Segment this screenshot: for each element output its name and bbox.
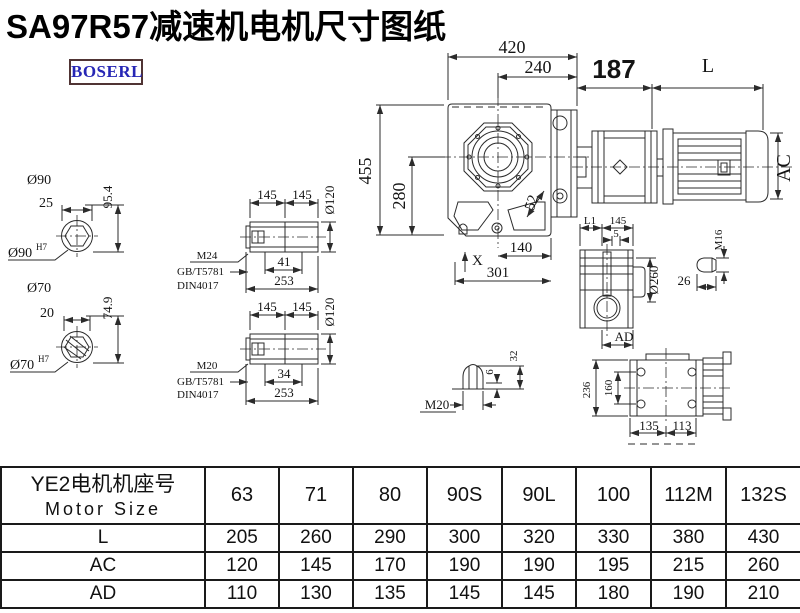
dim-32: 32 (508, 351, 520, 362)
dim-187: 187 (592, 54, 635, 84)
table-row-L: L 205 260 290 300 320 330 380 430 (1, 524, 800, 552)
dim-95-4: 95.4 (100, 185, 115, 208)
table-header-row: YE2电机机座号 Motor Size 63 71 80 90S 90L 100… (1, 467, 800, 524)
size-col: 71 (279, 467, 353, 524)
cell: 145 (279, 552, 353, 580)
label-d70: Ø70 (27, 281, 51, 296)
dim-140: 140 (510, 240, 533, 256)
dim-145a: 145 (257, 187, 277, 202)
dim-AD: AD (615, 329, 634, 344)
table-row-AC: AC 120 145 170 190 190 195 215 260 (1, 552, 800, 580)
label-d70h7-tol: H7 (38, 354, 49, 364)
row-label: AD (1, 580, 205, 608)
size-col: 90S (427, 467, 502, 524)
dim-145e: 145 (610, 215, 627, 227)
label-din4017-a: DIN4017 (177, 280, 219, 292)
cell: 195 (576, 552, 651, 580)
cell: 290 (353, 524, 427, 552)
label-m20: M20 (197, 360, 218, 372)
cell: 190 (502, 552, 576, 580)
cell: 135 (353, 580, 427, 608)
plug-detail-m20: M20 6 32 (420, 351, 524, 413)
dim-74-9: 74.9 (100, 297, 115, 320)
dim-o120b: Ø120 (322, 298, 337, 327)
cell: 190 (427, 552, 502, 580)
cell: 120 (205, 552, 279, 580)
dimension-drawing: 420 240 187 L 455 280 52 140 301 (0, 0, 800, 466)
dim-420: 420 (499, 37, 526, 57)
cell: 430 (726, 524, 800, 552)
shaft-end-view-lower: 20 74.9 Ø70 Ø70 H7 (10, 281, 124, 373)
header-cn: YE2电机机座号 (2, 472, 204, 498)
dim-455: 455 (355, 158, 375, 185)
cell: 215 (651, 552, 726, 580)
dim-M16: M16 (713, 229, 725, 250)
dim-240: 240 (525, 57, 552, 77)
cell: 210 (726, 580, 800, 608)
size-col: 63 (205, 467, 279, 524)
label-gbt5781-b: GB/T5781 (177, 376, 224, 388)
dim-5: 5 (613, 228, 619, 240)
side-view: L1 145 5 Ø260 AD (580, 215, 661, 349)
size-col: 132S (726, 467, 800, 524)
cell: 110 (205, 580, 279, 608)
dim-280: 280 (389, 183, 409, 210)
dim-236: 236 (581, 381, 593, 398)
dim-25: 25 (39, 196, 53, 211)
size-col: 100 (576, 467, 651, 524)
cell: 190 (651, 580, 726, 608)
header-en: Motor Size (2, 498, 204, 520)
size-col: 112M (651, 467, 726, 524)
cell: 205 (205, 524, 279, 552)
label-d90: Ø90 (27, 173, 51, 188)
front-view-dimensions: 420 240 187 L 455 280 52 140 301 (355, 37, 795, 285)
shaft-end-view-upper: 25 95.4 Ø90 Ø90 H7 (8, 173, 124, 261)
hollow-shaft-lower: 145 145 Ø120 34 253 M20 GB/T5781 DIN4017 (177, 298, 337, 405)
dim-135: 135 (639, 418, 659, 433)
dim-L1: L1 (584, 215, 596, 227)
dim-253b: 253 (274, 385, 294, 400)
dim-41: 41 (278, 254, 291, 269)
bolt-detail-m16: M16 26 (678, 229, 730, 291)
dim-145b: 145 (292, 187, 312, 202)
row-label: AC (1, 552, 205, 580)
label-din4017-b: DIN4017 (177, 389, 219, 401)
label-d90h7-tol: H7 (36, 242, 47, 252)
motor-size-table: YE2电机机座号 Motor Size 63 71 80 90S 90L 100… (0, 466, 800, 609)
dim-253a: 253 (274, 273, 294, 288)
bottom-view: 236 160 135 113 (581, 348, 733, 444)
dim-301: 301 (487, 265, 510, 281)
cell: 145 (502, 580, 576, 608)
dim-X: X (472, 253, 483, 269)
cell: 330 (576, 524, 651, 552)
front-view-motor-outline (572, 129, 795, 204)
cell: 145 (427, 580, 502, 608)
dim-26: 26 (678, 273, 692, 288)
dim-6: 6 (484, 369, 496, 375)
cell: 380 (651, 524, 726, 552)
front-view-gearbox-outline (440, 95, 590, 248)
label-gbt5781-a: GB/T5781 (177, 266, 224, 278)
cell: 130 (279, 580, 353, 608)
cell: 260 (279, 524, 353, 552)
cell: 300 (427, 524, 502, 552)
dim-113: 113 (672, 418, 691, 433)
drawing-sheet: SA97R57减速机电机尺寸图纸 BOSERL (0, 0, 800, 613)
size-col: 90L (502, 467, 576, 524)
dim-52: 52 (522, 193, 542, 212)
label-d70h7: Ø70 (10, 358, 34, 373)
hollow-shaft-upper: 145 145 Ø120 41 253 M24 GB/T5781 DIN4017 (177, 186, 337, 293)
dim-34: 34 (278, 366, 292, 381)
cell: 260 (726, 552, 800, 580)
header-motor-size: YE2电机机座号 Motor Size (1, 467, 205, 524)
table-row-AD: AD 110 130 135 145 145 180 190 210 (1, 580, 800, 608)
dim-o120a: Ø120 (322, 186, 337, 215)
dim-M20: M20 (425, 397, 450, 412)
dim-145d: 145 (292, 299, 312, 314)
dim-L: L (702, 55, 714, 77)
cell: 180 (576, 580, 651, 608)
dim-160: 160 (603, 379, 615, 396)
row-label: L (1, 524, 205, 552)
dim-145c: 145 (257, 299, 277, 314)
cell: 170 (353, 552, 427, 580)
cell: 320 (502, 524, 576, 552)
dim-o260: Ø260 (646, 266, 661, 295)
dim-AC: AC (773, 154, 795, 182)
label-d90h7: Ø90 (8, 246, 32, 261)
size-col: 80 (353, 467, 427, 524)
label-m24: M24 (197, 250, 218, 262)
dim-20: 20 (40, 306, 54, 321)
